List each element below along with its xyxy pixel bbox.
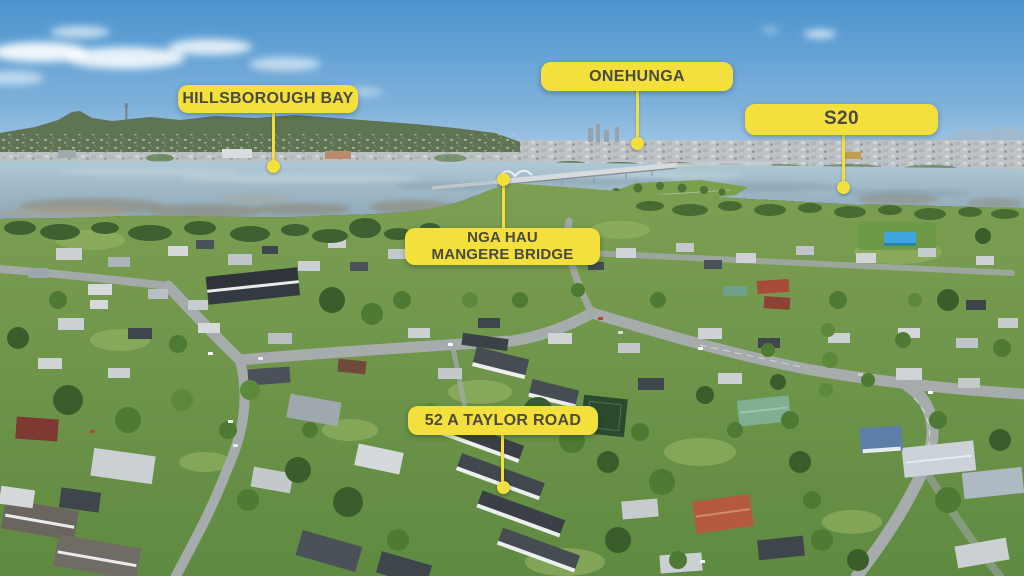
label-text: S20 xyxy=(824,109,859,130)
location-dot xyxy=(631,137,644,150)
label-text: ONEHUNGA xyxy=(589,68,685,85)
location-dot xyxy=(497,481,510,494)
aerial-photo-background xyxy=(0,0,1024,576)
label-onehunga: ONEHUNGA xyxy=(541,62,733,91)
location-dot xyxy=(837,181,850,194)
leader-line xyxy=(502,184,505,230)
label-taylor-road: 52 A TAYLOR ROAD xyxy=(408,406,598,435)
leader-line xyxy=(842,133,845,182)
location-dot xyxy=(267,160,280,173)
label-nga-hau-mangere-bridge: NGA HAU MANGERE BRIDGE xyxy=(405,228,600,265)
location-dot xyxy=(497,173,510,186)
label-text-line2: MANGERE BRIDGE xyxy=(432,247,574,263)
leader-line xyxy=(636,89,639,138)
label-hillsborough-bay: HILLSBOROUGH BAY xyxy=(178,85,358,113)
aerial-photo: HILLSBOROUGH BAY ONEHUNGA S20 NGA HAU MA… xyxy=(0,0,1024,576)
leader-line xyxy=(272,110,275,162)
label-text: 52 A TAYLOR ROAD xyxy=(425,412,582,429)
label-s20: S20 xyxy=(745,104,938,135)
label-text-line1: NGA HAU xyxy=(467,230,538,246)
label-text: HILLSBOROUGH BAY xyxy=(182,90,353,107)
leader-line xyxy=(501,433,504,483)
